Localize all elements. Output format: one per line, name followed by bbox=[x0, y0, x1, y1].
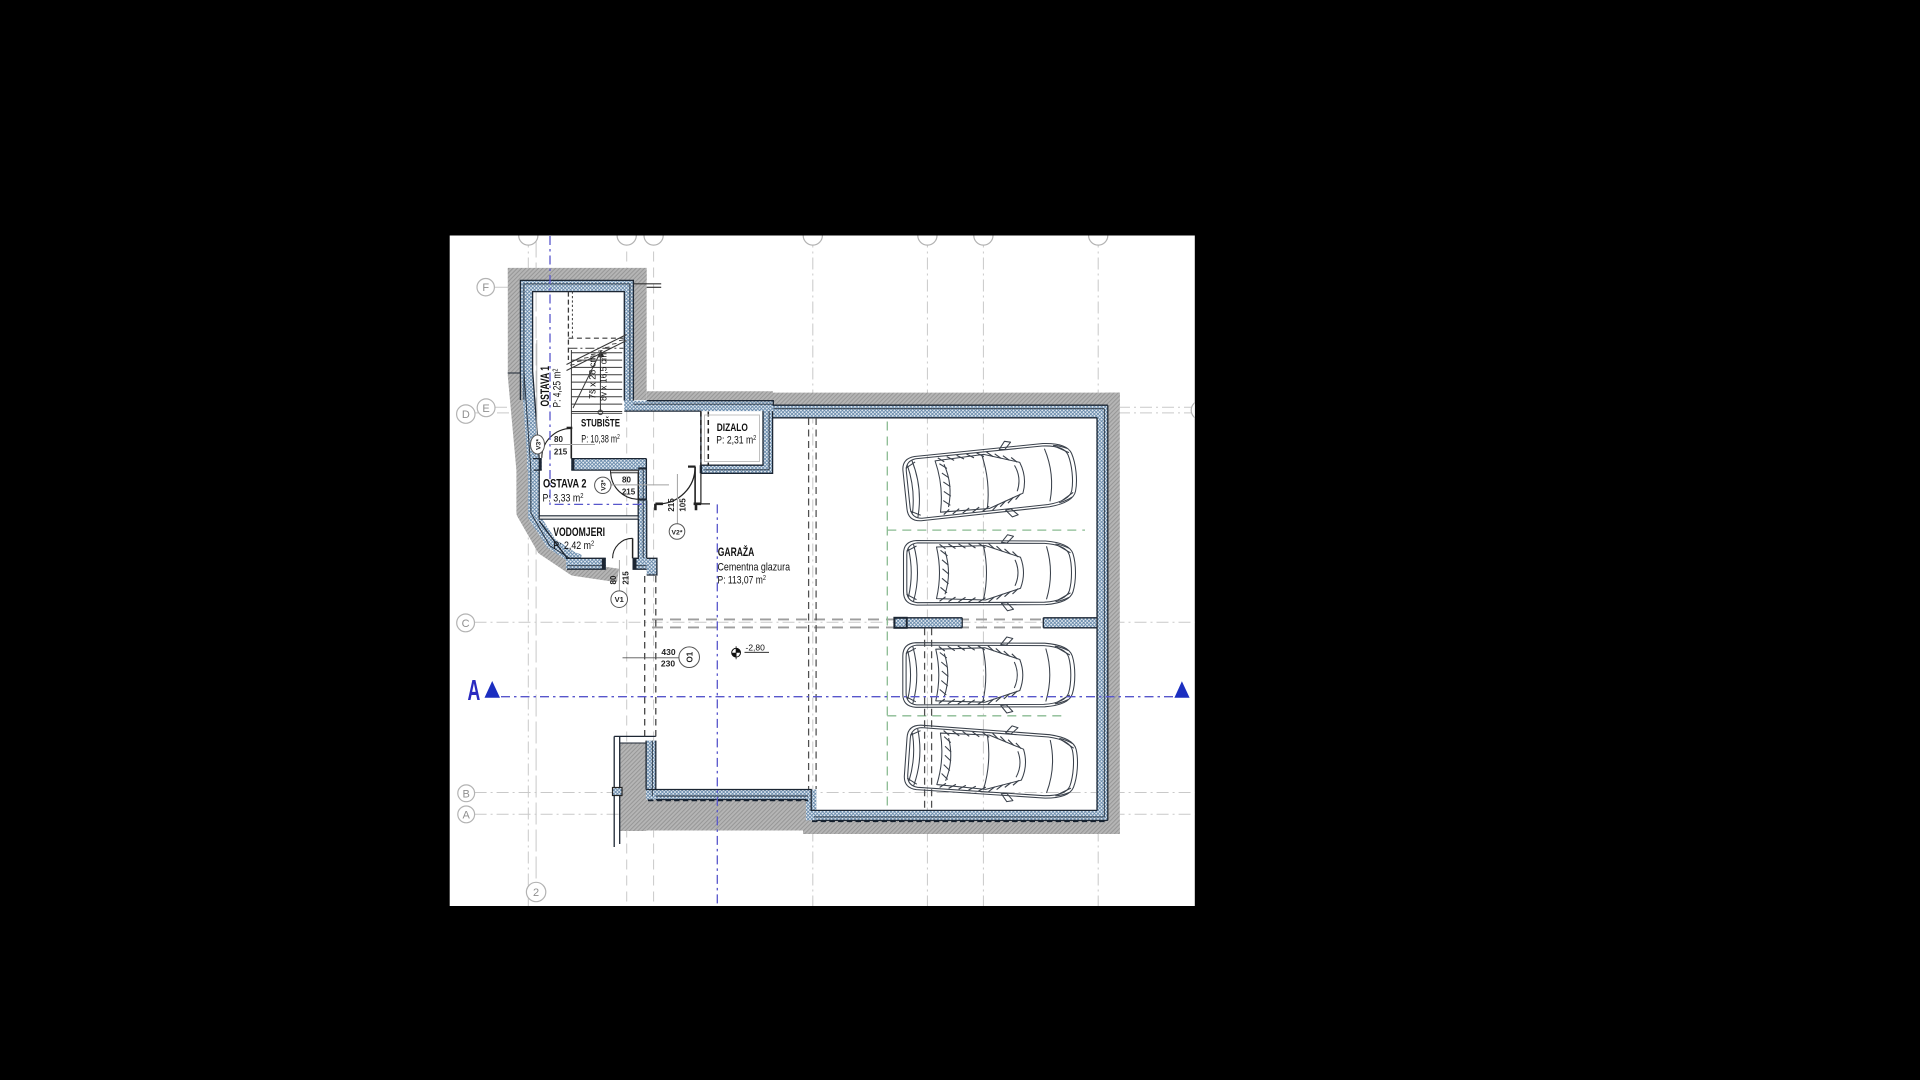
svg-text:VODOMJERI: VODOMJERI bbox=[553, 525, 605, 539]
svg-text:V2*: V2* bbox=[672, 529, 683, 536]
svg-text:GARAŽA: GARAŽA bbox=[718, 544, 755, 559]
svg-text:80: 80 bbox=[554, 435, 563, 444]
svg-text:F: F bbox=[482, 282, 489, 294]
svg-text:D: D bbox=[462, 409, 470, 421]
svg-text:C: C bbox=[462, 618, 470, 630]
svg-text:105: 105 bbox=[679, 498, 688, 512]
svg-text:215: 215 bbox=[554, 448, 568, 457]
svg-text:-2,80: -2,80 bbox=[746, 643, 766, 653]
svg-text:215: 215 bbox=[667, 498, 676, 512]
svg-text:430: 430 bbox=[661, 647, 675, 657]
svg-text:P: 10,38 m2: P: 10,38 m2 bbox=[581, 432, 620, 446]
svg-text:215: 215 bbox=[622, 571, 631, 585]
svg-text:V3*: V3* bbox=[535, 439, 542, 450]
svg-text:V3*: V3* bbox=[601, 479, 608, 490]
svg-text:2: 2 bbox=[533, 887, 539, 899]
svg-text:O1: O1 bbox=[686, 651, 695, 662]
svg-text:A: A bbox=[468, 675, 481, 707]
svg-text:STUBIŠTE: STUBIŠTE bbox=[581, 416, 620, 429]
svg-text:P: 4,25 m2: P: 4,25 m2 bbox=[551, 369, 564, 408]
svg-text:P: 3,33 m2: P: 3,33 m2 bbox=[543, 491, 584, 505]
svg-text:OSTAVA 2: OSTAVA 2 bbox=[543, 477, 587, 491]
svg-text:8v x 16,5 cm: 8v x 16,5 cm bbox=[599, 353, 609, 401]
svg-text:215: 215 bbox=[622, 488, 636, 497]
svg-text:80: 80 bbox=[609, 575, 618, 584]
svg-text:A: A bbox=[463, 809, 471, 821]
svg-text:7š x 28 cm: 7š x 28 cm bbox=[588, 355, 598, 399]
svg-text:E: E bbox=[482, 403, 489, 415]
svg-text:P: 2,42 m2: P: 2,42 m2 bbox=[553, 539, 594, 553]
svg-text:80: 80 bbox=[622, 476, 631, 485]
svg-text:P: 113,07 m2: P: 113,07 m2 bbox=[718, 573, 767, 587]
svg-text:DIZALO: DIZALO bbox=[717, 422, 748, 434]
svg-text:P: 2,31 m2: P: 2,31 m2 bbox=[716, 433, 756, 447]
svg-text:230: 230 bbox=[661, 659, 675, 669]
svg-text:Cementna glazura: Cementna glazura bbox=[718, 562, 791, 574]
svg-text:V1: V1 bbox=[615, 595, 624, 604]
svg-text:B: B bbox=[463, 788, 470, 800]
